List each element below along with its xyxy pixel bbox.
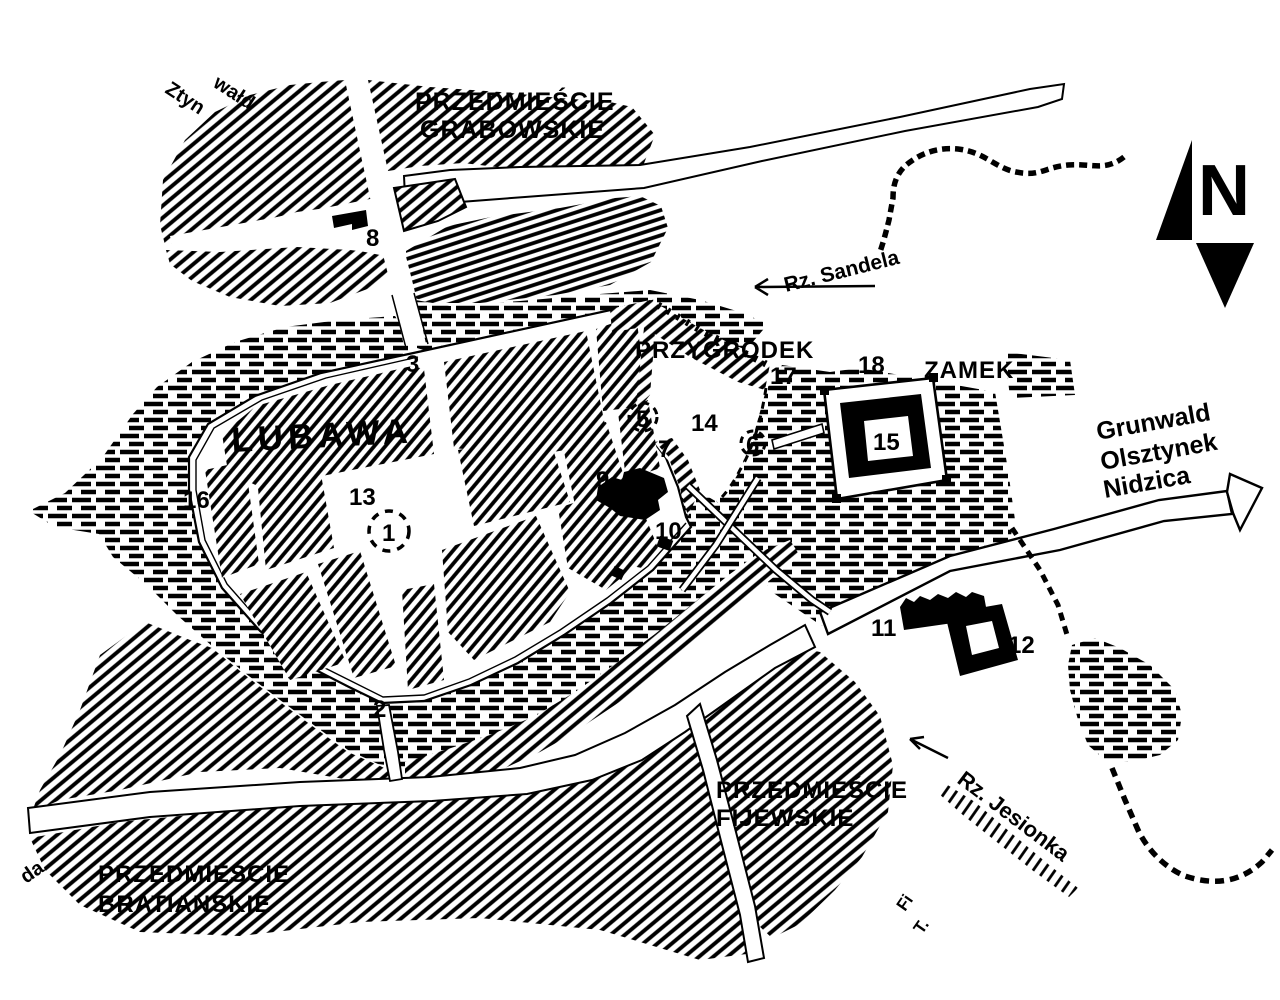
svg-text:7: 7 [658, 436, 671, 463]
svg-text:9: 9 [596, 467, 609, 494]
svg-text:14: 14 [691, 410, 718, 437]
svg-text:BRATIAŃSKIE: BRATIAŃSKIE [98, 890, 271, 918]
svg-text:13: 13 [349, 484, 376, 511]
svg-text:2: 2 [373, 696, 386, 723]
svg-text:1: 1 [382, 520, 395, 547]
svg-text:GRABOWSKIE: GRABOWSKIE [420, 116, 605, 144]
svg-text:16: 16 [183, 487, 210, 514]
svg-text:FIJEWSKIE: FIJEWSKIE [716, 805, 854, 832]
svg-text:12: 12 [1008, 632, 1035, 659]
svg-text:PRZEDMIEŚCIE: PRZEDMIEŚCIE [716, 776, 908, 804]
svg-text:N: N [1198, 151, 1250, 231]
svg-text:6: 6 [746, 432, 759, 459]
svg-text:PRZYGRODEK: PRZYGRODEK [635, 337, 814, 364]
svg-text:11: 11 [871, 615, 896, 642]
svg-text:PRZEDMIEŚCIE: PRZEDMIEŚCIE [98, 860, 290, 888]
svg-text:ZAMEK: ZAMEK [924, 357, 1014, 384]
svg-text:18: 18 [858, 352, 885, 379]
svg-text:8: 8 [366, 225, 379, 252]
svg-text:3: 3 [406, 351, 419, 378]
svg-text:5: 5 [636, 406, 649, 433]
svg-text:PRZEDMIEŚCIE: PRZEDMIEŚCIE [415, 86, 615, 116]
svg-text:15: 15 [873, 429, 900, 456]
svg-text:17: 17 [770, 363, 797, 390]
svg-text:10: 10 [655, 518, 682, 545]
